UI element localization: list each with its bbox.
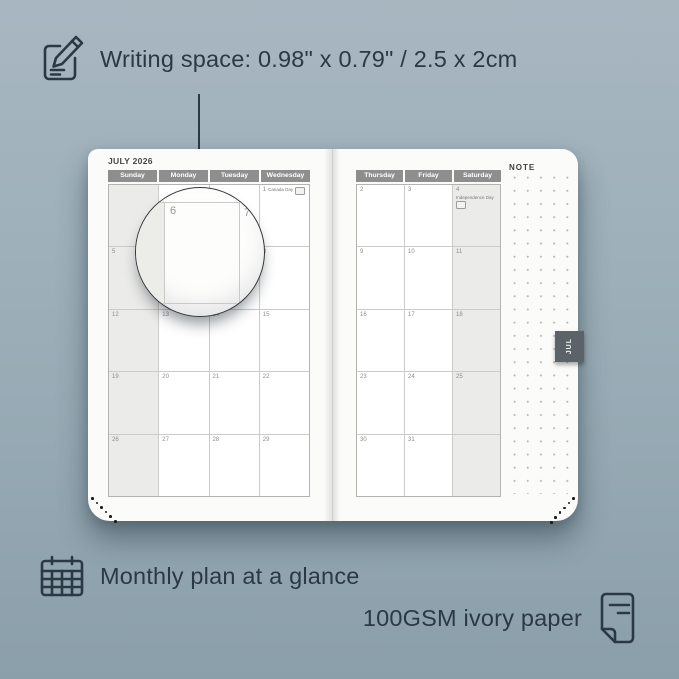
calendar-cell-31: 31 [405,435,452,496]
calendar-cell-20: 20 [159,372,208,433]
corner-stitch-dot [96,502,99,505]
corner-stitch-dot [91,497,94,500]
calendar-cell-empty [453,435,500,496]
date-number: 5 [112,249,115,256]
monthly-plan-text: Monthly plan at a glance [100,563,360,590]
date-number: 30 [360,437,367,444]
calendar-cell-4: 4Independence Day [453,185,500,246]
calendar-cell-24: 24 [405,372,452,433]
day-header-tuesday: Tuesday [210,170,259,182]
day-header-sunday: Sunday [108,170,157,182]
calendar-cell-18: 18 [453,310,500,371]
holiday-flag-icon [456,201,466,209]
date-number: 28 [213,437,220,444]
date-number: 25 [456,374,463,381]
date-number: 3 [408,187,411,194]
date-number: 21 [213,374,220,381]
date-number: 29 [263,437,270,444]
calendar-cell-17: 17 [405,310,452,371]
date-number: 10 [408,249,415,256]
corner-stitch-dot [554,516,557,519]
calendar-cell-21: 21 [210,372,259,433]
month-title: JULY 2026 [108,156,153,166]
calendar-cell-9: 9 [357,247,404,308]
day-header-friday: Friday [405,170,452,182]
calendar-cell-22: 22 [260,372,309,433]
day-header-monday: Monday [159,170,208,182]
calendar-cell-30: 30 [357,435,404,496]
writing-space-text: Writing space: 0.98" x 0.79" / 2.5 x 2cm [100,46,517,73]
corner-stitch-dot [559,511,562,514]
corner-stitch-dot [563,507,566,510]
calendar-cell-26: 26 [109,435,158,496]
writing-space-callout: Writing space: 0.98" x 0.79" / 2.5 x 2cm [38,34,517,84]
calendar-cell-13: 13 [159,310,208,371]
calendar-grid-icon [38,554,85,598]
corner-stitch-dot [572,497,575,500]
magnified-grid-line [164,202,165,317]
magnified-grid-line [239,202,240,317]
month-tab-jul: JUL [555,331,584,362]
corner-stitch-dot [114,520,117,523]
date-number: 16 [360,312,367,319]
calendar-cell-2: 2 [357,185,404,246]
calendar-cell-27: 27 [159,435,208,496]
calendar-cell-10: 10 [405,247,452,308]
calendar-cell-29: 29 [260,435,309,496]
date-number: 1 [263,187,266,195]
month-tab-label: JUL [566,338,573,354]
magnified-next-date-number: 7 [244,207,250,219]
corner-stitch-dot [109,515,112,518]
magnified-date-number: 6 [170,205,176,217]
paper-icon [597,592,637,644]
calendar-cell-11: 11 [453,247,500,308]
magnified-shaded-column [136,188,164,316]
calendar-cell-19: 19 [109,372,158,433]
date-number: 24 [408,374,415,381]
date-number: 27 [162,437,169,444]
monthly-plan-callout: Monthly plan at a glance [38,554,360,598]
magnified-grid-line [136,303,264,304]
calendar-cell-15: 15 [260,310,309,371]
calendar-cell-14: 14 [210,310,259,371]
calendar-cell-23: 23 [357,372,404,433]
book-spine [324,149,340,521]
right-day-headers: ThursdayFridaySaturday [356,170,501,182]
magnified-grid-line [136,202,264,203]
right-day-cells: 234Independence Day910111617182324253031 [356,184,501,497]
magnifier-circle: 6 7 [135,187,265,317]
calendar-cell-16: 16 [357,310,404,371]
corner-stitch-dot [100,506,103,509]
date-number: 20 [162,374,169,381]
note-label: NOTE [509,163,538,173]
date-number: 26 [112,437,119,444]
holiday-flag-icon [295,187,305,195]
pencil-document-icon [38,34,85,84]
holiday-label: Canada Day [268,187,293,195]
date-number: 17 [408,312,415,319]
corner-stitch-dot [550,521,553,524]
paper-callout: 100GSM ivory paper [363,592,637,644]
date-number: 18 [456,312,463,319]
date-number: 31 [408,437,415,444]
holiday-label: Independence Day [456,195,494,201]
date-number: 23 [360,374,367,381]
date-number: 22 [263,374,270,381]
calendar-cell-1: 1Canada Day [260,185,309,246]
date-number: 4 [456,187,459,194]
date-number: 2 [360,187,363,194]
date-number: 15 [263,312,270,319]
planner-product-image: Writing space: 0.98" x 0.79" / 2.5 x 2cm… [0,0,679,679]
calendar-cell-8: 8 [260,247,309,308]
date-number: 11 [456,249,462,256]
day-header-wednesday: Wednesday [261,170,310,182]
calendar-cell-25: 25 [453,372,500,433]
date-number: 12 [112,312,119,319]
left-day-headers: SundayMondayTuesdayWednesday [108,170,310,182]
calendar-cell-28: 28 [210,435,259,496]
calendar-cell-3: 3 [405,185,452,246]
corner-stitch-dot [105,511,108,514]
date-number: 9 [360,249,363,256]
date-number: 19 [112,374,119,381]
corner-stitch-dot [568,502,571,505]
right-month-grid: ThursdayFridaySaturday 234Independence D… [356,170,501,497]
day-header-thursday: Thursday [356,170,403,182]
paper-text: 100GSM ivory paper [363,605,582,632]
calendar-cell-12: 12 [109,310,158,371]
day-header-saturday: Saturday [454,170,501,182]
